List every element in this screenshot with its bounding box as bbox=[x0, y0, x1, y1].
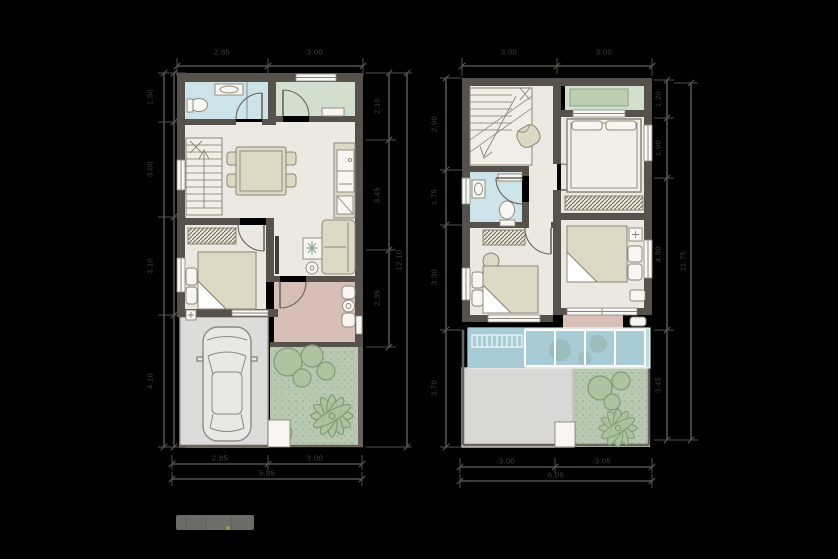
plans-drawing bbox=[0, 0, 838, 559]
dim-label: 5.85 bbox=[259, 469, 275, 477]
nightstand-icon bbox=[630, 290, 645, 301]
floor1-terrace-furniture bbox=[342, 286, 355, 327]
dim-label: 1.90 bbox=[654, 140, 662, 156]
tree-icon bbox=[604, 394, 620, 410]
dim-label: 1.75 bbox=[430, 189, 438, 205]
pillow-icon bbox=[186, 287, 197, 304]
dim-label: 3.10 bbox=[146, 258, 154, 274]
first-floor-plan bbox=[177, 73, 363, 447]
dim-label: 3.00 bbox=[596, 48, 612, 56]
dim-label: 3.70 bbox=[430, 380, 438, 396]
dim-label: 2.10 bbox=[373, 98, 381, 114]
dim-label: 3.00 bbox=[307, 454, 323, 462]
floor2-stairs-icon bbox=[470, 88, 532, 165]
pillow-icon bbox=[628, 246, 642, 262]
floor1-stairs-icon bbox=[186, 138, 222, 215]
dim-label: 3.00 bbox=[307, 48, 323, 56]
stool-icon bbox=[342, 313, 355, 327]
floor2-skylight bbox=[468, 328, 650, 368]
logo-dot-icon bbox=[226, 526, 230, 530]
dim-label: 3.30 bbox=[430, 269, 438, 285]
dim-label: 4.10 bbox=[146, 373, 154, 389]
car-icon bbox=[197, 327, 257, 441]
dim-label: 1.50 bbox=[146, 89, 154, 105]
tree-icon bbox=[612, 372, 630, 390]
pillow-icon bbox=[472, 272, 483, 288]
watermark-logo bbox=[176, 515, 254, 530]
side-table-icon bbox=[306, 262, 318, 274]
wardrobe-icon bbox=[188, 228, 236, 244]
ac-unit-icon bbox=[630, 317, 646, 326]
tree-icon bbox=[301, 345, 323, 367]
dim-label: 11.75 bbox=[679, 251, 687, 271]
dim-label: 3.45 bbox=[373, 187, 381, 203]
dim-label: 4.80 bbox=[654, 246, 662, 262]
dim-label: 3.00 bbox=[499, 457, 515, 465]
floor2-master-furniture bbox=[565, 119, 643, 210]
entry-step bbox=[322, 108, 344, 116]
floor1-kitchen-icon bbox=[334, 143, 355, 218]
wardrobe-icon bbox=[483, 230, 525, 245]
dim-label: 2.35 bbox=[373, 290, 381, 306]
toilet-icon bbox=[500, 201, 515, 219]
dim-label: 3.00 bbox=[146, 161, 154, 177]
pillow-icon bbox=[186, 268, 197, 285]
pillow-icon bbox=[606, 121, 636, 130]
dim-label: 2.85 bbox=[212, 454, 228, 462]
floor-plan-canvas: 2.85 3.00 2.85 3.00 5.85 1.50 3.00 3.10 … bbox=[0, 0, 838, 559]
pillow-icon bbox=[472, 290, 483, 306]
tree-icon bbox=[317, 362, 335, 380]
floor1-dining-set-icon bbox=[227, 147, 296, 195]
walkway bbox=[268, 420, 290, 447]
dim-label: 3.45 bbox=[654, 377, 662, 393]
dim-label: 6.05 bbox=[548, 471, 564, 479]
dim-label: 1.20 bbox=[654, 91, 662, 107]
dim-label: 3.00 bbox=[501, 48, 517, 56]
stool-icon bbox=[342, 286, 355, 299]
dim-label: 2.85 bbox=[214, 48, 230, 56]
walkway bbox=[555, 422, 575, 447]
tv-icon bbox=[275, 236, 279, 274]
round-table-icon bbox=[343, 300, 355, 312]
dim-label: 12.10 bbox=[395, 250, 403, 271]
wardrobe-icon bbox=[565, 196, 643, 210]
tree-icon bbox=[293, 369, 311, 387]
second-floor-plan bbox=[462, 78, 652, 447]
dim-label: 2.90 bbox=[430, 116, 438, 132]
dim-label: 3.05 bbox=[595, 457, 611, 465]
pillow-icon bbox=[628, 264, 642, 280]
pillow-icon bbox=[572, 121, 602, 130]
